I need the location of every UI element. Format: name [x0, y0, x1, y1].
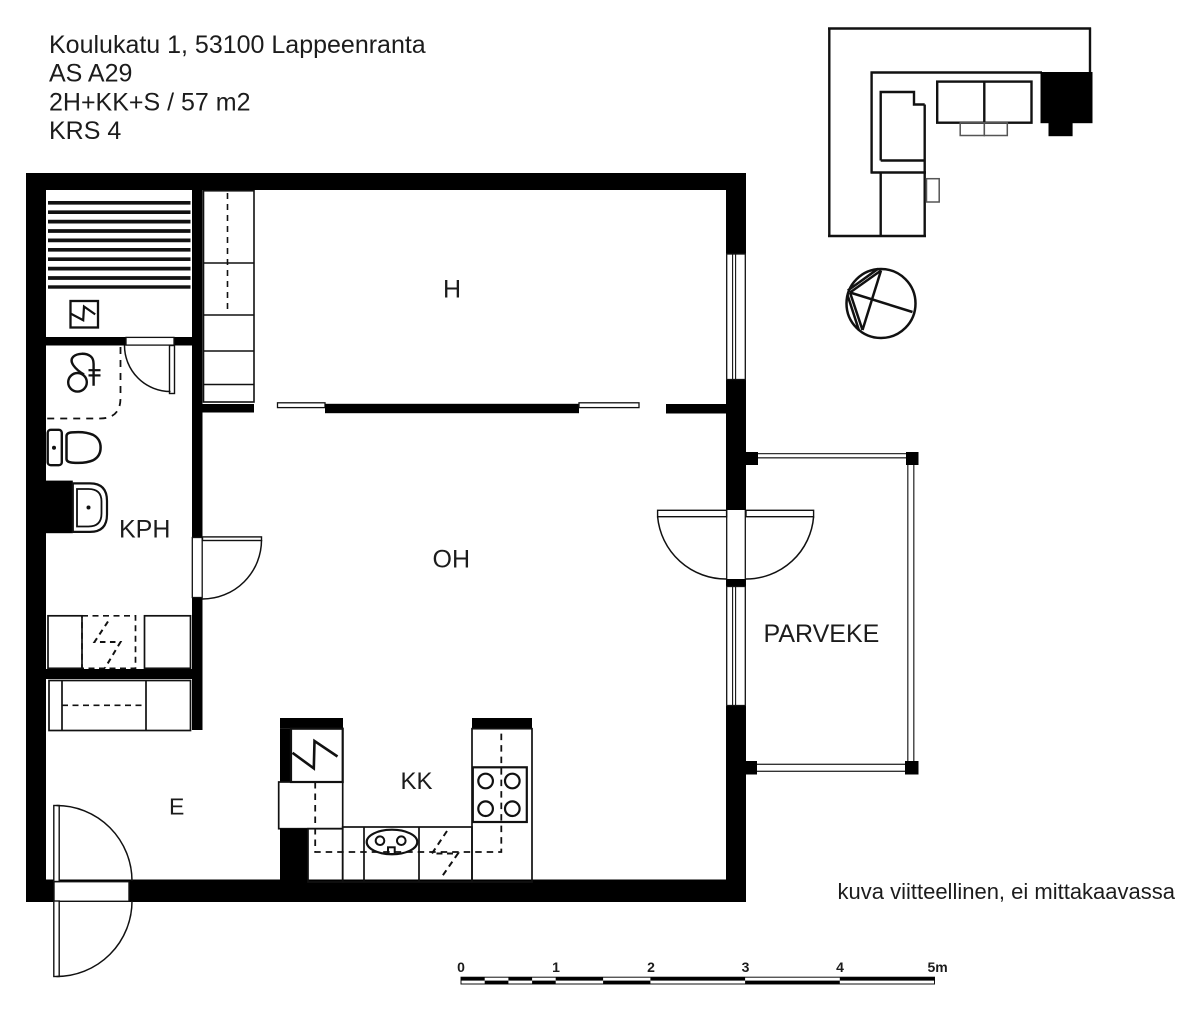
svg-text:2H+KK+S / 57 m2: 2H+KK+S / 57 m2 — [49, 88, 251, 116]
svg-text:3: 3 — [742, 959, 750, 975]
svg-text:1: 1 — [552, 959, 560, 975]
svg-text:0: 0 — [457, 959, 465, 975]
svg-text:2: 2 — [647, 959, 655, 975]
svg-text:5m: 5m — [928, 959, 948, 975]
svg-text:AS A29: AS A29 — [49, 60, 132, 88]
svg-text:H: H — [443, 276, 461, 304]
svg-text:E: E — [169, 794, 184, 820]
svg-text:KK: KK — [401, 768, 433, 795]
svg-text:Koulukatu 1, 53100 Lappeenrant: Koulukatu 1, 53100 Lappeenranta — [49, 31, 426, 59]
svg-text:PARVEKE: PARVEKE — [764, 620, 880, 648]
svg-text:KPH: KPH — [119, 516, 170, 544]
svg-text:4: 4 — [836, 959, 844, 975]
svg-text:kuva viitteellinen, ei mittaka: kuva viitteellinen, ei mittakaavassa — [838, 879, 1176, 904]
svg-text:OH: OH — [433, 546, 471, 574]
svg-text:KRS 4: KRS 4 — [49, 117, 121, 145]
